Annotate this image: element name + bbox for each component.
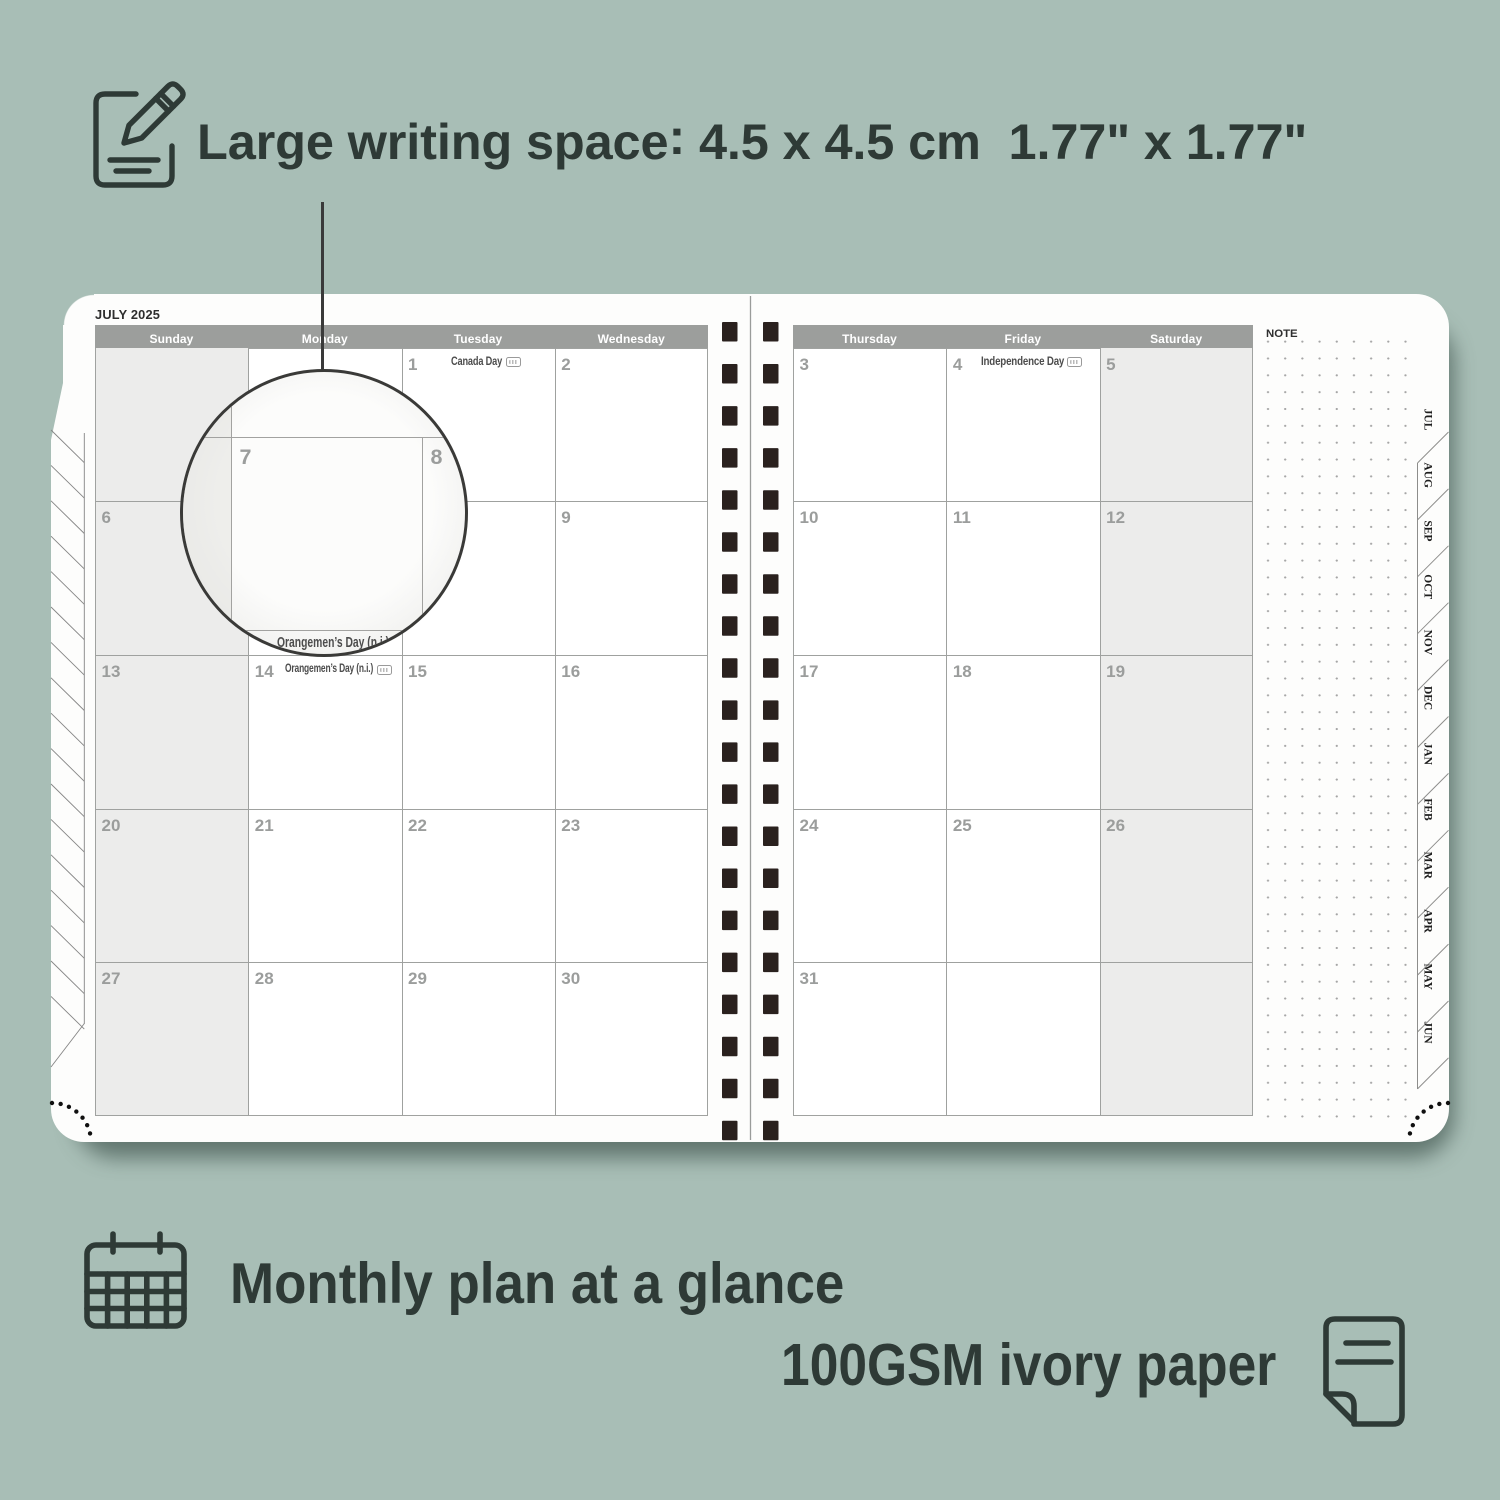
svg-text:APR: APR (1422, 909, 1434, 933)
svg-text:OCT: OCT (1422, 574, 1434, 599)
svg-text:FEB: FEB (1422, 798, 1434, 821)
svg-text:JUL: JUL (1422, 409, 1434, 431)
svg-text:SEP: SEP (1422, 520, 1434, 541)
svg-text:DEC: DEC (1422, 686, 1434, 710)
svg-text:JAN: JAN (1422, 743, 1434, 766)
svg-text:AUG: AUG (1422, 462, 1434, 488)
svg-text:NOV: NOV (1422, 630, 1434, 656)
svg-text:MAR: MAR (1422, 852, 1434, 880)
svg-text:JUN: JUN (1422, 1021, 1434, 1044)
svg-text:MAY: MAY (1422, 963, 1434, 990)
